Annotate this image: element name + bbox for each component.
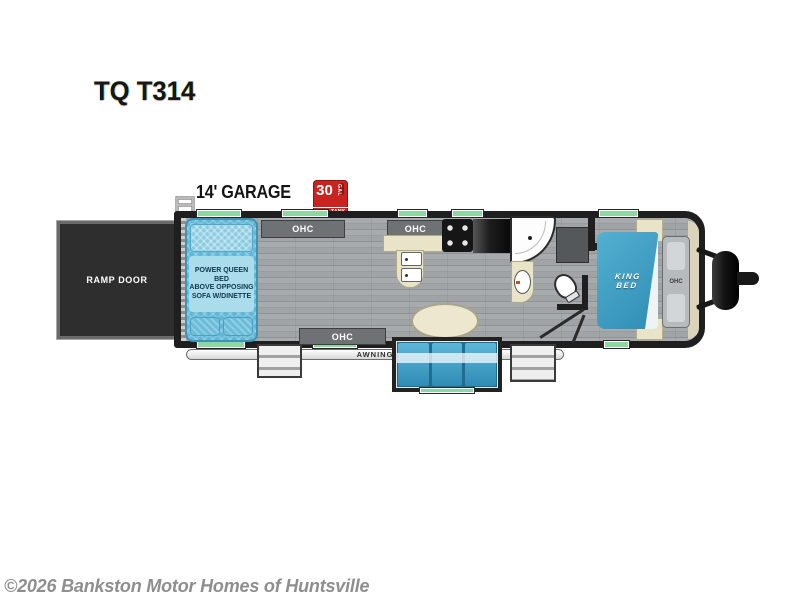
kitchen-sink bbox=[401, 252, 422, 266]
bedroom-ohc-cabinet: OHC bbox=[662, 236, 690, 328]
window bbox=[197, 341, 245, 348]
fuel-unit: GAL bbox=[336, 184, 342, 196]
window bbox=[197, 210, 241, 217]
ohc-label: OHC bbox=[332, 332, 354, 342]
model-title: TQ T314 bbox=[94, 76, 195, 107]
garage-ohc-cabinet: OHC bbox=[261, 220, 345, 238]
sofa-cushion bbox=[431, 342, 464, 387]
queen-bed-pillows bbox=[190, 224, 253, 252]
sofa-cushion bbox=[464, 342, 497, 387]
ramp-door: RAMP DOOR bbox=[57, 221, 177, 339]
dinette-table bbox=[411, 303, 479, 339]
ohc-label: OHC bbox=[405, 224, 427, 234]
entry-steps bbox=[257, 344, 302, 378]
queen-bed-label: POWER QUEEN BED ABOVE OPPOSING SOFA W/DI… bbox=[189, 256, 254, 312]
king-bed: KING BED bbox=[597, 232, 658, 329]
kitchen-sink bbox=[401, 268, 422, 282]
copyright-text: ©2026 Bankston Motor Homes of Huntsville bbox=[4, 576, 369, 597]
bathroom-cabinet bbox=[556, 227, 589, 263]
fuel-capacity: 30 bbox=[316, 182, 333, 199]
hitch-coupler bbox=[737, 272, 759, 285]
sofa-slideout bbox=[392, 337, 502, 392]
ohc-label: OHC bbox=[669, 279, 682, 285]
garage-length-label: 14' GARAGE bbox=[196, 182, 291, 203]
slideout-window bbox=[420, 388, 474, 393]
queen-bed-label-line3: SOFA W/DINETTE bbox=[192, 293, 251, 302]
king-bed-label: KING BED bbox=[597, 232, 658, 329]
dinette-cushion bbox=[223, 317, 253, 336]
propane-tank-icon bbox=[712, 251, 739, 310]
trifold-sofa bbox=[397, 342, 497, 387]
bottom-ohc-cabinet: OHC bbox=[299, 328, 386, 345]
king-bed-label-line1: KING bbox=[615, 272, 642, 281]
window bbox=[604, 341, 629, 348]
window bbox=[599, 210, 638, 217]
sofa-cushion bbox=[397, 342, 430, 387]
awning-label: AWNING bbox=[357, 350, 394, 359]
dinette-cushion bbox=[190, 317, 220, 336]
ohc-label: OHC bbox=[292, 224, 314, 234]
window bbox=[398, 210, 427, 217]
window bbox=[452, 210, 483, 217]
awning-bar: AWNING bbox=[186, 349, 564, 360]
king-bed-label-line2: BED bbox=[616, 281, 638, 290]
floorplan-diagram: TQ T314 14' GARAGE 30 GAL FUEL TANK RAMP… bbox=[0, 0, 800, 600]
stove-cooktop bbox=[442, 219, 473, 252]
queen-bed-label-line2: ABOVE OPPOSING bbox=[189, 284, 253, 293]
entry-steps bbox=[510, 344, 556, 382]
bathroom-sink bbox=[514, 270, 531, 294]
window bbox=[282, 210, 328, 217]
queen-bed-label-line1: POWER QUEEN BED bbox=[189, 267, 254, 284]
ramp-door-label: RAMP DOOR bbox=[86, 275, 147, 285]
sofa-highlight bbox=[397, 353, 497, 363]
refrigerator bbox=[473, 219, 510, 253]
